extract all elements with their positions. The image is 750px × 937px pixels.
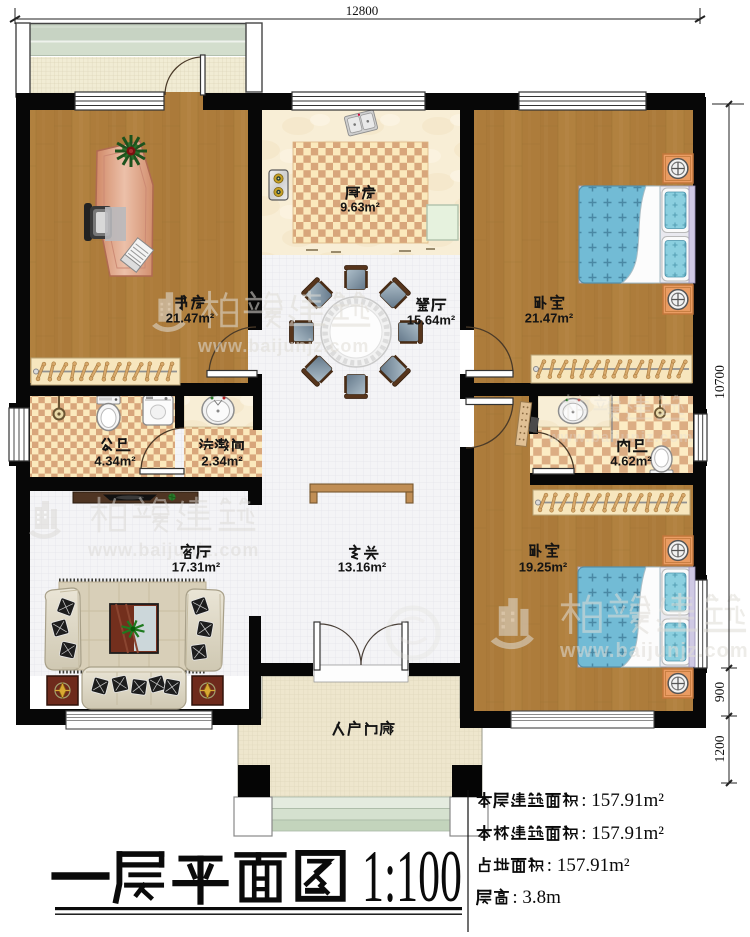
svg-text:: 157.91m²: : 157.91m²	[581, 823, 664, 844]
svg-text:9.63m²: 9.63m²	[340, 201, 380, 215]
svg-text:www.baijunjz.com: www.baijunjz.com	[87, 540, 259, 560]
svg-text:4.62m²: 4.62m²	[610, 454, 652, 469]
svg-text:13.16m²: 13.16m²	[338, 560, 387, 575]
svg-text:1:100: 1:100	[362, 836, 462, 918]
svg-text:: 157.91m²: : 157.91m²	[547, 855, 630, 876]
svg-text:www.baijunjz.com: www.baijunjz.com	[559, 640, 749, 662]
svg-text:2.34m²: 2.34m²	[201, 454, 243, 469]
svg-text:10700: 10700	[712, 365, 727, 399]
svg-text:www.baijunjz.com: www.baijunjz.com	[197, 336, 369, 356]
svg-text:19.25m²: 19.25m²	[519, 560, 568, 575]
svg-text:17.31m²: 17.31m²	[172, 560, 221, 575]
svg-text:12800: 12800	[346, 3, 379, 18]
svg-text:: 3.8m: : 3.8m	[512, 887, 561, 908]
svg-text:900: 900	[712, 682, 727, 703]
svg-text:1200: 1200	[712, 735, 727, 762]
svg-text:21.47m²: 21.47m²	[166, 311, 215, 326]
svg-text:15.64m²: 15.64m²	[407, 313, 456, 328]
svg-text:www.baijunjz.com: www.baijunjz.com	[547, 429, 693, 446]
svg-text:4.34m²: 4.34m²	[94, 454, 136, 469]
svg-text:21.47m²: 21.47m²	[525, 311, 574, 326]
svg-text:: 157.91m²: : 157.91m²	[581, 790, 664, 811]
